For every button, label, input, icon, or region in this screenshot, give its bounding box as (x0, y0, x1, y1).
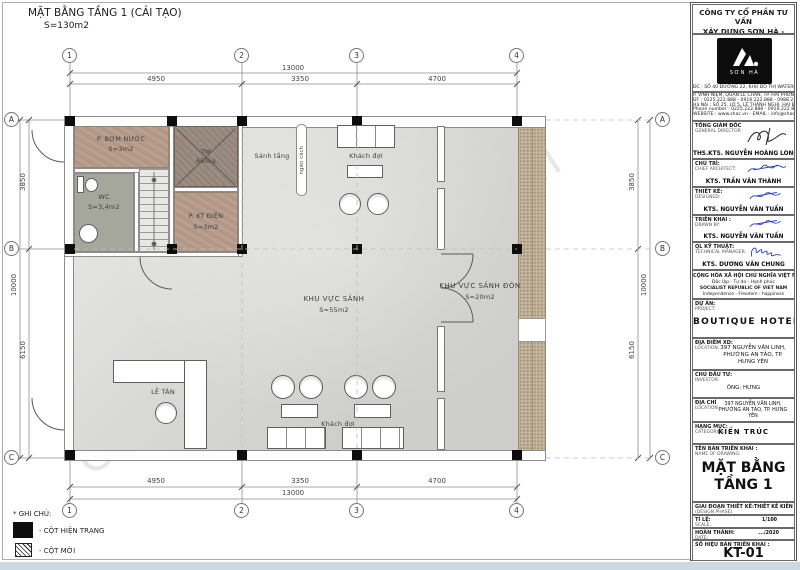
door-swing-arcs (32, 130, 473, 430)
grid-bubble-row: C (4, 450, 19, 465)
signature-scribble (742, 243, 792, 261)
signature-name: KTS. TRẦN VĂN THÀNH (693, 179, 794, 185)
signature-scribble (742, 126, 792, 146)
page-bottom-edge (0, 562, 800, 570)
dim-label: 4950 (126, 477, 186, 485)
signature-name: KTS. DƯƠNG VĂN CHUNG (693, 262, 794, 268)
grid-bubble-col: 3 (349, 48, 364, 63)
room-label-pump: P. BƠM NƯỚC (76, 135, 166, 143)
room-label-welcome: KHU VỰC SẢNH ĐÓN (428, 282, 532, 290)
signature-chief-architect: CHỦ TRÌ: CHIEF ARCHITECT: KTS. TRẦN VĂN … (692, 159, 795, 187)
grid-bubble-col: 4 (509, 48, 524, 63)
grid-bubble-col: 2 (234, 48, 249, 63)
company-name-section: CÔNG TY CỔ PHẦN TƯ VẤN XÂY DỰNG SƠN HÀ -… (692, 4, 795, 34)
grid-bubble-col: 2 (234, 503, 249, 518)
category-section: HẠNG MỤC: CATEGORIES: KIẾN TRÚC (692, 422, 795, 444)
legend-new-column-label: - CỘT MỚI (39, 547, 75, 555)
dim-label: 6150 (19, 330, 27, 370)
dim-label: 13000 (263, 64, 323, 72)
grid-bubble-col: 4 (509, 503, 524, 518)
elevator-x-icon (177, 129, 235, 185)
dim-label: 3350 (270, 477, 330, 485)
date-label: HOÀN THÀNH: (693, 529, 735, 536)
dim-label: 3350 (270, 75, 330, 83)
grid-bubble-row: A (4, 112, 19, 127)
room-label-lobby: KHU VỰC SẢNH (284, 295, 384, 303)
dim-label: 3850 (19, 162, 27, 202)
room-label-welcome-area: S=20m2 (428, 293, 532, 301)
dim-label: 4950 (126, 75, 186, 83)
room-label-wc-area: S=3,4m2 (80, 203, 128, 211)
dim-label: 3850 (628, 162, 636, 202)
stair-rail (152, 172, 156, 250)
site-location-section: ĐỊA ĐIỂM XD: LOCATION: 397 NGUYỄN VĂN LI… (692, 338, 795, 370)
date-value: .../2020 (758, 529, 791, 536)
grid-bubble-row: A (655, 112, 670, 127)
scale-label: TỈ LỆ: (693, 516, 711, 523)
company-name-line2: XÂY DỰNG SƠN HÀ - SHAC (693, 27, 794, 34)
legend-existing-column-label: - CỘT HIỆN TRẠNG (39, 527, 104, 535)
room-label-reception: LỄ TÂN (136, 388, 190, 396)
signature-scribble (742, 216, 792, 234)
signature-name: KTS. NGUYỄN VĂN TUẤN (693, 207, 794, 213)
room-label-wc: WC (80, 193, 128, 201)
grid-bubble-row: B (4, 241, 19, 256)
sonha-logo-icon (730, 46, 760, 68)
company-address-line: ĐC : SỐ 40 ĐƯỜNG 22, KHU ĐÔ THỊ WATERFRO… (693, 86, 794, 91)
signature-technical-manager: QL KỸ THUẬT: TECHNICAL MANAGER: KTS. DƯƠ… (692, 242, 795, 270)
project-label-en: PROJECT: (693, 307, 794, 312)
room-label-electrical-area: S=3m2 (171, 223, 241, 231)
annotation-lines-layer (0, 0, 690, 562)
grid-bubble-row: C (655, 450, 670, 465)
republic-line: CỘNG HÒA XÃ HỘI CHỦ NGHĨA VIỆT NAM (693, 271, 794, 279)
scale-value: 1/100 (762, 516, 791, 523)
legend-existing-column-swatch (13, 522, 33, 538)
dim-label: 13000 (263, 489, 323, 497)
drawing-number-section: SỐ HIỆU BẢN TRIỂN KHAI : KT-01 (692, 540, 795, 561)
drawing-number-value: KT-01 (693, 546, 794, 561)
dim-label: 10000 (640, 265, 648, 305)
investor-name: ÔNG: HƯNG (693, 383, 794, 392)
phase-value: THIẾT KẾ KIẾN TRÚC (754, 503, 795, 510)
design-phase-row: GIAI ĐOẠN THIẾT KẾ: (DESIGN PHASE) THIẾT… (692, 502, 795, 515)
dashed-grid-lines (74, 120, 653, 458)
company-logo-section: SƠN HÀ ĐC : SỐ 40 ĐƯỜNG 22, KHU ĐÔ THỊ W… (692, 34, 795, 92)
company-address-section: P. VĨNH NIỆM, QUẬN LÊ CHÂN, TP. HẢI PHÒN… (692, 92, 795, 121)
room-label-lobby-area: S=55m2 (284, 306, 384, 314)
room-label-elevator-load: 650kg (176, 158, 236, 165)
project-name: BOUTIQUE HOTEL (693, 317, 794, 327)
republic-line: SOCIALIST REPUBLIC OF VIET NAM (693, 285, 794, 291)
drawing-name-label: TÊN BẢN TRIỂN KHAI : (693, 445, 794, 452)
grid-bubble-col: 1 (62, 503, 77, 518)
scale-row: TỈ LỆ: SCALE: 1/100 (692, 515, 795, 528)
phase-label: GIAI ĐOẠN THIẾT KẾ: (693, 503, 754, 510)
room-label-waiting-bottom: Khách đợi (304, 420, 372, 428)
date-row: HOÀN THÀNH: DATE: .../2020 (692, 528, 795, 540)
room-label-pump-area: S=3m2 (76, 145, 166, 153)
drawing-name-section: TÊN BẢN TRIỂN KHAI : NAME OF DRAWING: MẶ… (692, 444, 795, 502)
legend-title: * GHI CHÚ: (13, 510, 51, 518)
room-label-floor-hall: Sảnh tầng (240, 152, 304, 160)
company-address-line: WEBSITE : www.shac.vn - EMAIL : info@sha… (693, 113, 794, 118)
signature-general-director: TỔNG GIÁM ĐỐC GENERAL DIRECTOR THS.KTS. … (692, 121, 795, 159)
signature-designed: THIẾT KẾ: DESIGNED: KTS. NGUYỄN VĂN TUẤN (692, 187, 795, 215)
grid-bubble-col: 3 (349, 503, 364, 518)
signature-scribble (742, 188, 792, 206)
project-section: DỰ ÁN: PROJECT: BOUTIQUE HOTEL (692, 299, 795, 338)
republic-line: Independence - Freedom - happiness (693, 291, 794, 297)
dim-label: 4700 (407, 75, 467, 83)
grid-bubble-row: B (655, 241, 670, 256)
dim-label: 6150 (628, 330, 636, 370)
republic-section: CỘNG HÒA XÃ HỘI CHỦ NGHĨA VIỆT NAM Độc l… (692, 270, 795, 299)
room-label-waiting-top: Khách đợi (331, 152, 401, 160)
drawing-sheet: MẶT BẰNG TẦNG 1 (CẢI TẠO) S=130m2 Compan… (0, 0, 800, 570)
dim-label: 4700 (407, 477, 467, 485)
signature-drawn-by: TRIỂN KHAI : DRAWN BY: KTS. NGUYỄN VĂN T… (692, 215, 795, 242)
drawing-area: MẶT BẰNG TẦNG 1 (CẢI TẠO) S=130m2 Compan… (0, 0, 690, 562)
room-label-elevator: TM (176, 148, 236, 156)
drawing-name-label-en: NAME OF DRAWING: (693, 452, 794, 457)
investor-section: CHỦ ĐẦU TƯ: INVESTOR: ÔNG: HƯNG (692, 370, 795, 398)
company-name-line1: CÔNG TY CỔ PHẦN TƯ VẤN (693, 8, 794, 27)
room-label-electrical: P. KT ĐIỆN (171, 212, 241, 220)
drawing-name-line1: MẶT BẰNG (693, 460, 794, 476)
company-logo-text: SƠN HÀ (730, 70, 759, 76)
signature-name: THS.KTS. NGUYỄN HOÀNG LONG (693, 151, 794, 157)
company-logo: SƠN HÀ (717, 38, 772, 84)
dim-label: 10000 (10, 265, 18, 305)
investor-label: CHỦ ĐẦU TƯ: (693, 371, 794, 378)
signature-scribble (742, 160, 792, 178)
drawing-name-line2: TẦNG 1 (693, 477, 794, 493)
legend-new-column-swatch (15, 543, 32, 557)
signature-name: KTS. NGUYỄN VĂN TUẤN (693, 234, 794, 240)
grid-bubble-col: 1 (62, 48, 77, 63)
project-label: DỰ ÁN: (693, 300, 794, 307)
investor-address-section: ĐỊA CHỈ LOCATION: 397 NGUYỄN VĂN LINH, P… (692, 398, 795, 422)
title-block: CÔNG TY CỔ PHẦN TƯ VẤN XÂY DỰNG SƠN HÀ -… (690, 2, 797, 561)
